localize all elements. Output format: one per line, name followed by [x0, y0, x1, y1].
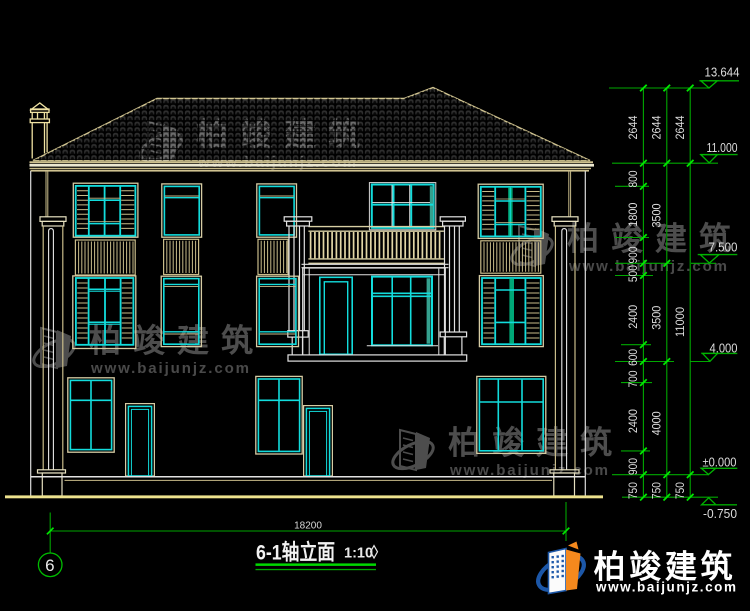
svg-text:4000: 4000	[650, 411, 664, 435]
svg-text:2644: 2644	[673, 115, 687, 139]
svg-text:500: 500	[626, 265, 640, 282]
svg-text:2400: 2400	[626, 409, 640, 433]
svg-text:±0.000: ±0.000	[703, 455, 737, 469]
svg-text:11.000: 11.000	[707, 141, 738, 155]
svg-text:750: 750	[650, 482, 664, 499]
svg-text:6: 6	[45, 556, 54, 575]
svg-text:7.500: 7.500	[709, 240, 738, 254]
svg-text:18200: 18200	[294, 521, 322, 532]
svg-text:1:10: 1:10	[344, 546, 373, 562]
svg-text:750: 750	[673, 482, 687, 499]
svg-text:6-1轴立面: 6-1轴立面	[256, 540, 335, 565]
svg-text:900: 900	[626, 458, 640, 475]
svg-text:700: 700	[626, 370, 640, 387]
svg-text:3500: 3500	[650, 306, 664, 330]
svg-text:750: 750	[626, 482, 640, 499]
svg-text:900: 900	[626, 246, 640, 263]
svg-text:600: 600	[626, 349, 640, 366]
svg-text:3500: 3500	[650, 203, 664, 227]
svg-text:2644: 2644	[626, 115, 640, 139]
svg-text:1800: 1800	[626, 202, 640, 226]
svg-text:11000: 11000	[673, 307, 687, 337]
svg-text:-0.750: -0.750	[703, 507, 737, 521]
svg-text:2400: 2400	[626, 305, 640, 329]
svg-text:13.644: 13.644	[705, 66, 740, 80]
svg-text:800: 800	[626, 170, 640, 187]
svg-text:2644: 2644	[650, 115, 664, 139]
